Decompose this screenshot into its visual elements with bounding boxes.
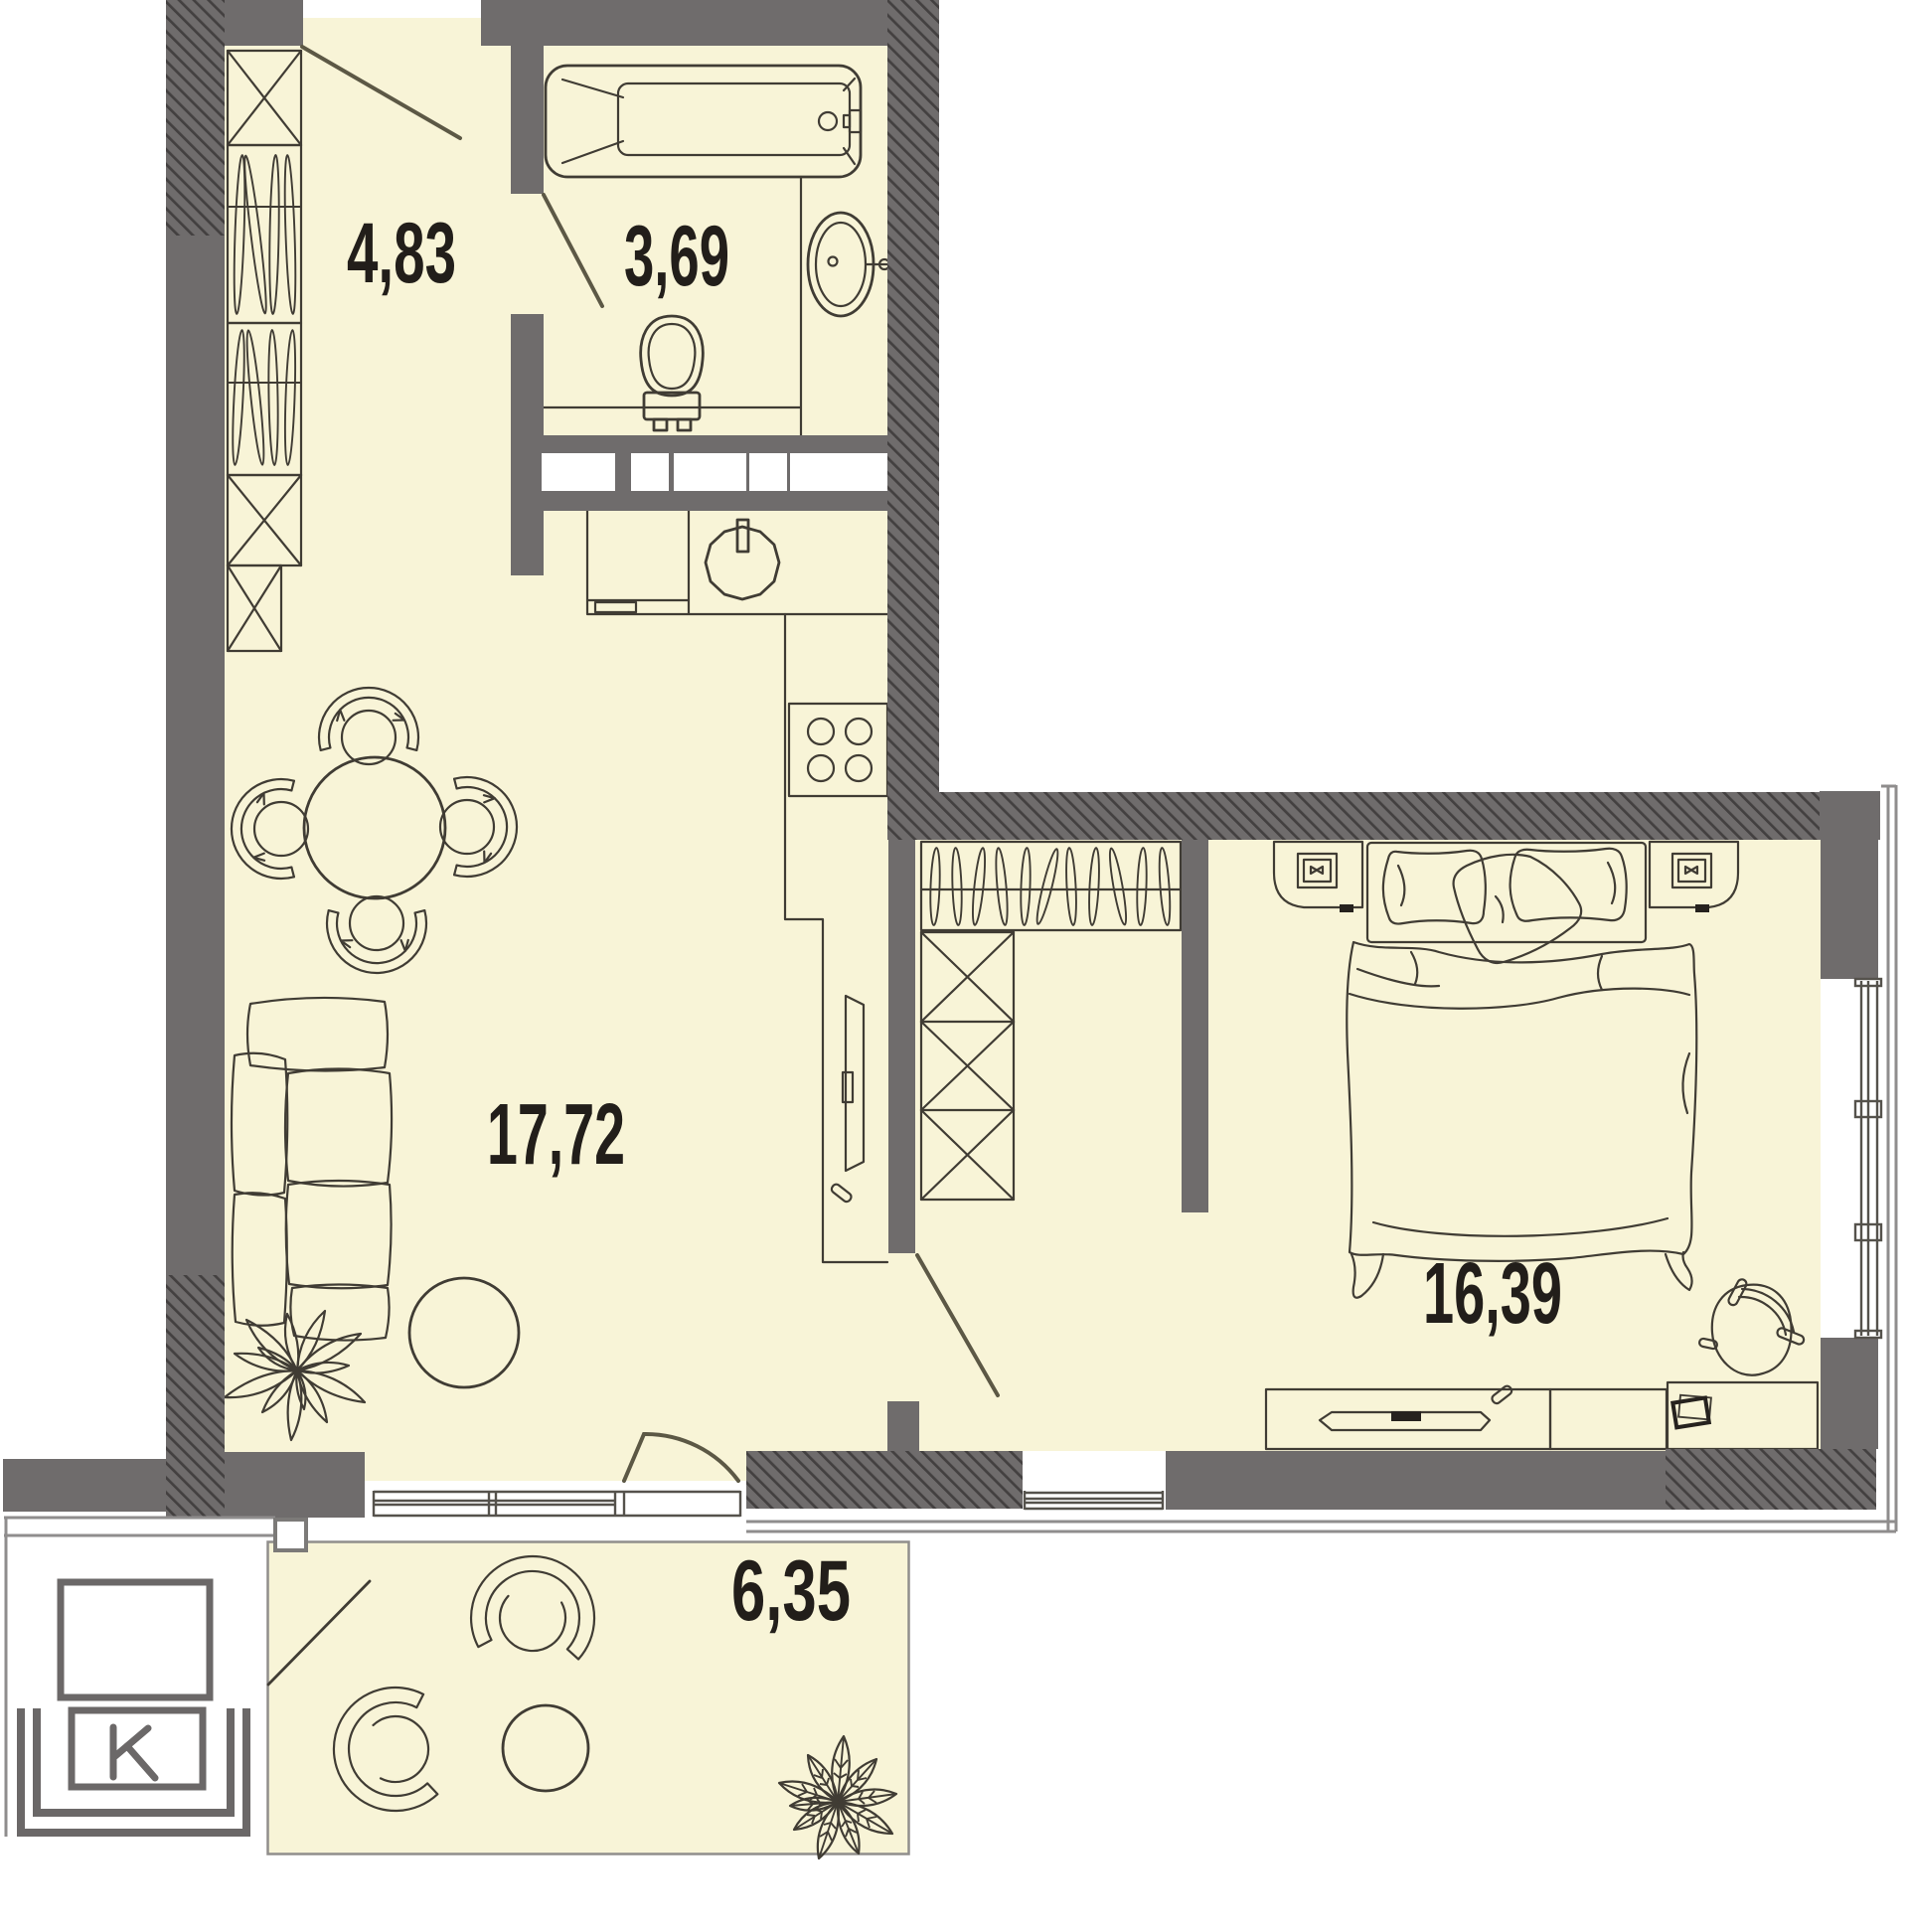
svg-text:17,72: 17,72 xyxy=(487,1086,625,1183)
svg-text:4,83: 4,83 xyxy=(347,206,456,301)
svg-text:6,35: 6,35 xyxy=(731,1543,851,1639)
svg-text:16,39: 16,39 xyxy=(1423,1245,1562,1342)
svg-text:3,69: 3,69 xyxy=(624,209,729,304)
